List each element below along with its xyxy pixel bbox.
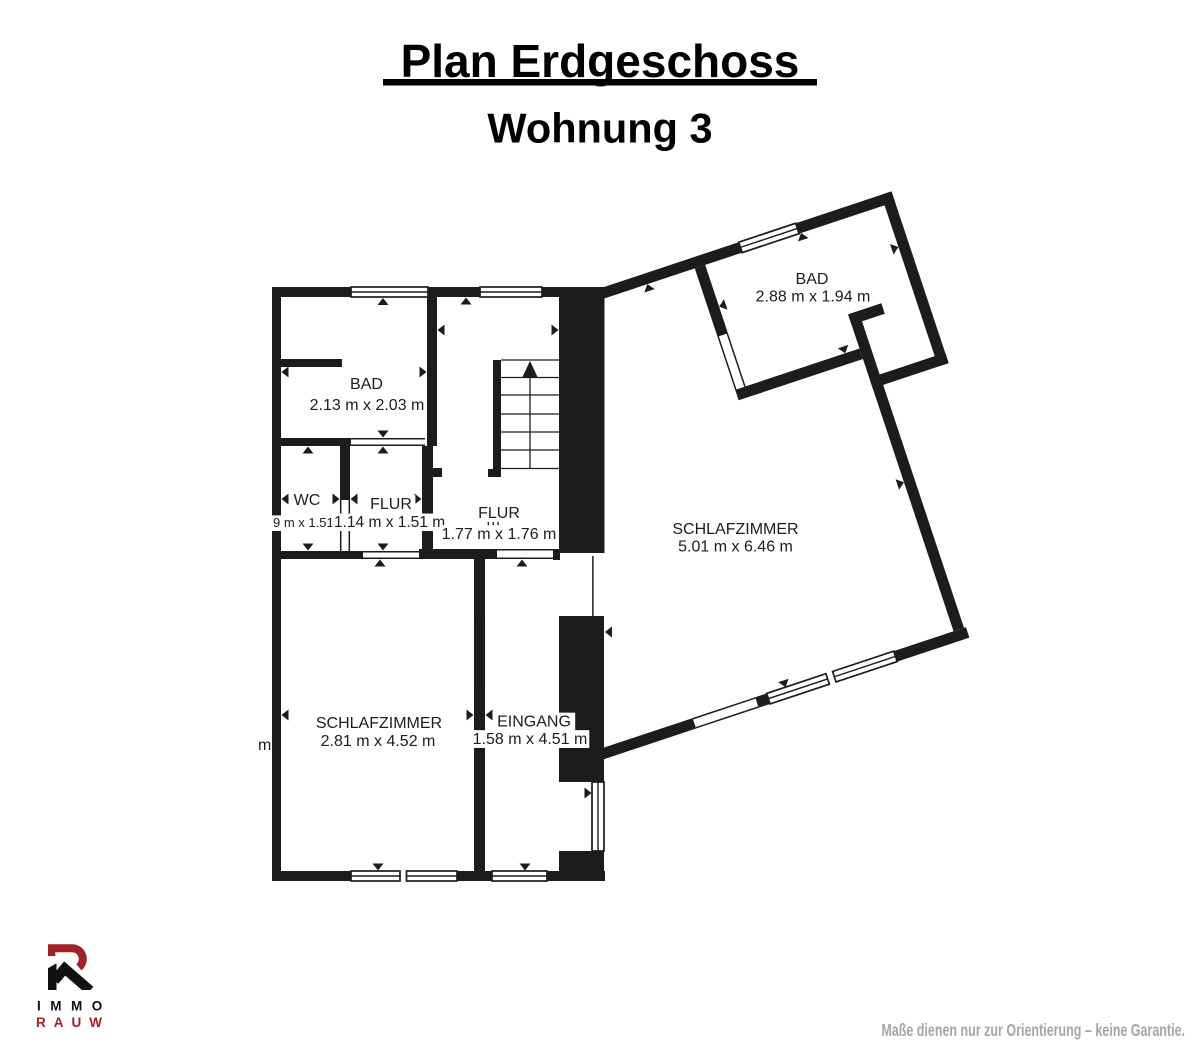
svg-text:IMMO: IMMO xyxy=(37,999,112,1014)
svg-text:1.14 m x 1.51 m: 1.14 m x 1.51 m xyxy=(334,514,445,531)
svg-text:RAUW: RAUW xyxy=(36,1015,110,1030)
svg-text:2.81 m x 4.52 m: 2.81 m x 4.52 m xyxy=(321,733,436,750)
svg-text:5.01 m x 6.46 m: 5.01 m x 6.46 m xyxy=(678,539,793,556)
svg-text:EINGANG: EINGANG xyxy=(497,714,571,731)
svg-text:1.58 m x 4.51 m: 1.58 m x 4.51 m xyxy=(473,731,588,748)
svg-text:BAD: BAD xyxy=(350,376,383,393)
svg-text:SCHLAFZIMMER: SCHLAFZIMMER xyxy=(316,715,442,732)
svg-text:2.88 m x 1.94 m: 2.88 m x 1.94 m xyxy=(756,289,871,306)
svg-text:BAD: BAD xyxy=(796,271,829,288)
svg-text:1.77 m x 1.76 m: 1.77 m x 1.76 m xyxy=(442,526,557,543)
svg-text:FLUR: FLUR xyxy=(370,496,412,513)
svg-text:FLUR: FLUR xyxy=(478,505,520,522)
svg-text:m: m xyxy=(258,737,271,754)
svg-text:Wohnung 3: Wohnung 3 xyxy=(487,105,712,152)
svg-text:Maße dienen nur zur Orientieru: Maße dienen nur zur Orientierung – keine… xyxy=(881,1021,1185,1041)
svg-text:SCHLAFZIMMER: SCHLAFZIMMER xyxy=(672,521,798,538)
svg-text:WC: WC xyxy=(294,492,321,509)
svg-text:2.13 m x 2.03 m: 2.13 m x 2.03 m xyxy=(310,397,425,414)
